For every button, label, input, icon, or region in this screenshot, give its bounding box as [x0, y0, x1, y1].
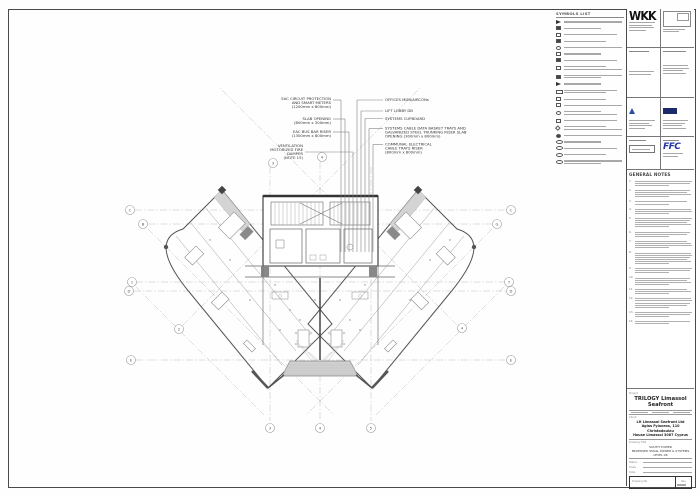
legend-symbol-wide-icon	[556, 90, 563, 94]
legend-item	[556, 159, 624, 165]
svg-text:(NOTE 15): (NOTE 15)	[283, 155, 303, 160]
project-label: Project	[629, 392, 692, 395]
legend-item	[556, 125, 624, 131]
legend-symbol-boxf-icon	[556, 39, 561, 43]
legend-symbol-box-icon	[556, 97, 561, 101]
legend-item	[556, 82, 624, 86]
grid-bubble: E	[507, 356, 516, 365]
legend-item	[556, 153, 624, 157]
legend-symbol-boxf-icon	[556, 75, 561, 79]
legend-item	[556, 134, 624, 138]
signature-box	[629, 145, 655, 153]
legend-symbol-oval-icon	[556, 153, 563, 157]
scale-row: Scale	[629, 466, 692, 470]
grid-bubble: 5	[367, 424, 376, 433]
drawing-sheet: EAC CIRCUIT PROTECTION AND SMART METERS …	[0, 0, 700, 494]
general-note: 6.	[629, 231, 692, 238]
legend-symbol-boxf-icon	[556, 26, 561, 30]
svg-text:(1300mm x 800mm): (1300mm x 800mm)	[292, 133, 332, 138]
legend-item	[556, 146, 624, 150]
svg-text:C: C	[129, 207, 132, 212]
legend-items	[556, 20, 624, 165]
legend-item	[556, 52, 624, 56]
general-note: 7.	[629, 240, 692, 249]
wkk-cell: WKK	[627, 9, 660, 47]
svg-text:LIFT LOBBY DB: LIFT LOBBY DB	[385, 108, 413, 113]
svg-text:D: D	[128, 288, 131, 293]
grid-bubble: C	[126, 206, 135, 215]
client-line: Agias Fylaxeos, 110 Christodoulou	[629, 424, 692, 433]
grid-bubble: 3	[266, 424, 275, 433]
legend-symbol-circ-icon	[556, 111, 561, 115]
legend-item	[556, 65, 624, 71]
status-row: Status	[629, 461, 692, 465]
legend-symbol-box-icon	[556, 103, 561, 107]
legend-symbol-oval-icon	[556, 140, 563, 144]
grid-bubble: B	[139, 220, 148, 229]
svg-text:(1200mm x 800mm): (1200mm x 800mm)	[292, 104, 332, 109]
callout-left: EAC CIRCUIT PROTECTION AND SMART METERS …	[270, 96, 331, 160]
drawing-number-cell: Drawing No.	[630, 477, 676, 488]
general-note: 13.	[629, 311, 692, 318]
drawing-number-box: Drawing No. Rev	[629, 476, 692, 489]
general-notes: GENERAL NOTES 1.2.3.4.5.6.7.8.9.10.11.12…	[627, 170, 694, 389]
legend-symbol-oval-icon	[556, 160, 563, 164]
legend-item	[556, 119, 624, 123]
legend-item	[556, 46, 624, 50]
legend-item	[556, 97, 624, 101]
svg-text:OFFICES MDB/AIRCONs: OFFICES MDB/AIRCONs	[385, 97, 429, 102]
general-note: 12.	[629, 297, 692, 309]
grid-bubble: 1	[128, 278, 137, 287]
general-note: 8.	[629, 251, 692, 265]
general-note: 2.	[629, 189, 692, 198]
legend-symbol-box-icon	[556, 52, 561, 56]
stamp-box	[663, 11, 691, 27]
legend-symbol-dia-icon	[555, 126, 560, 131]
svg-text:SYSTEMS CUPBOARD: SYSTEMS CUPBOARD	[385, 116, 425, 121]
legend-item	[556, 39, 624, 43]
consultant-cell-left	[627, 48, 660, 97]
engineer-cell	[660, 98, 694, 136]
legend-symbol-circ-icon	[556, 46, 561, 50]
project-block: Project TRILOGY Limassol Seafront Client…	[627, 389, 694, 491]
legend-title: SYMBOLS LIST	[556, 11, 624, 18]
titleblock-logo-row: WKK	[627, 9, 694, 48]
legend-item	[556, 110, 624, 116]
callout-labels: EAC CIRCUIT PROTECTION AND SMART METERS …	[270, 96, 467, 160]
svg-text:C: C	[510, 207, 513, 212]
general-note: 11.	[629, 288, 692, 295]
grid-bubble: 4	[458, 324, 467, 333]
grid-bubble: E	[127, 356, 136, 365]
svg-text:(800mm x 300mm): (800mm x 300mm)	[294, 120, 331, 125]
consultant-cell-right	[660, 48, 694, 97]
revision-row	[629, 410, 692, 415]
ffc-logo: FFC	[663, 143, 692, 152]
legend-symbol-box-icon	[556, 119, 561, 123]
architect-logo	[629, 108, 635, 114]
svg-text:B: B	[142, 221, 145, 226]
general-note: 9.	[629, 267, 692, 274]
general-notes-title: GENERAL NOTES	[629, 172, 692, 177]
svg-text:D: D	[510, 288, 513, 293]
callout-right: OFFICES MDB/AIRCONs LIFT LOBBY DB SYSTEM…	[385, 97, 467, 155]
grid-bubble: D	[125, 287, 134, 296]
revision-cell: Rev	[676, 477, 691, 488]
grid-bubble: G	[493, 220, 502, 229]
legend-symbol-tri-icon	[556, 20, 561, 24]
svg-text:G: G	[496, 221, 499, 226]
general-note: 3.	[629, 200, 692, 205]
legend-symbol-circf-icon	[556, 134, 561, 138]
svg-text:OPENING (300mm x 800mm): OPENING (300mm x 800mm)	[385, 134, 441, 139]
legend-symbol-oval-icon	[556, 146, 563, 150]
client-line: House Limassol 3087 Cyprus	[629, 433, 692, 437]
titleblock-signoff-row: FFC	[627, 137, 694, 170]
grid-bubble: D	[507, 287, 516, 296]
symbols-legend: SYMBOLS LIST	[556, 11, 624, 168]
grid-bubble: 4	[318, 153, 327, 162]
stamp-cell	[660, 9, 694, 47]
drawing-title-line: LEVEL 06	[629, 453, 692, 457]
engineer-logo	[663, 108, 677, 114]
grid-bubble: 3	[269, 159, 278, 168]
legend-item	[556, 103, 624, 107]
signature-cell	[627, 137, 660, 169]
legend-item	[556, 58, 624, 62]
legend-item	[556, 140, 624, 144]
grid-bubble: 7	[505, 278, 514, 287]
legend-item	[556, 73, 624, 79]
legend-symbol-boxf-icon	[556, 58, 561, 62]
wkk-logo: WKK	[629, 11, 658, 23]
titleblock-partner-logos-row	[627, 98, 694, 137]
general-note: 1.	[629, 180, 692, 187]
legend-item	[556, 33, 624, 37]
grid-bubble: 4	[316, 424, 325, 433]
legend-item	[556, 20, 624, 24]
ffc-cell: FFC	[660, 137, 694, 169]
title-block: WKK	[626, 9, 694, 486]
legend-item	[556, 88, 624, 94]
titleblock-consultants-row	[627, 48, 694, 98]
general-note: 10.	[629, 276, 692, 285]
general-note: 5.	[629, 217, 692, 229]
svg-text:(800mm x 800mm): (800mm x 800mm)	[385, 150, 422, 155]
legend-symbol-box-icon	[556, 33, 561, 37]
grid-bubble: C	[507, 206, 516, 215]
general-note: 4.	[629, 208, 692, 215]
legend-symbol-box-icon	[556, 66, 561, 70]
date-row: Date	[629, 470, 692, 474]
grid-bubble: 2	[175, 325, 184, 334]
project-name: TRILOGY Limassol Seafront	[629, 396, 692, 408]
legend-item	[556, 26, 624, 30]
legend-symbol-tri-icon	[556, 82, 561, 86]
general-note: 14.	[629, 320, 692, 325]
general-notes-list: 1.2.3.4.5.6.7.8.9.10.11.12.13.14.	[629, 180, 692, 326]
architect-cell	[627, 98, 660, 136]
